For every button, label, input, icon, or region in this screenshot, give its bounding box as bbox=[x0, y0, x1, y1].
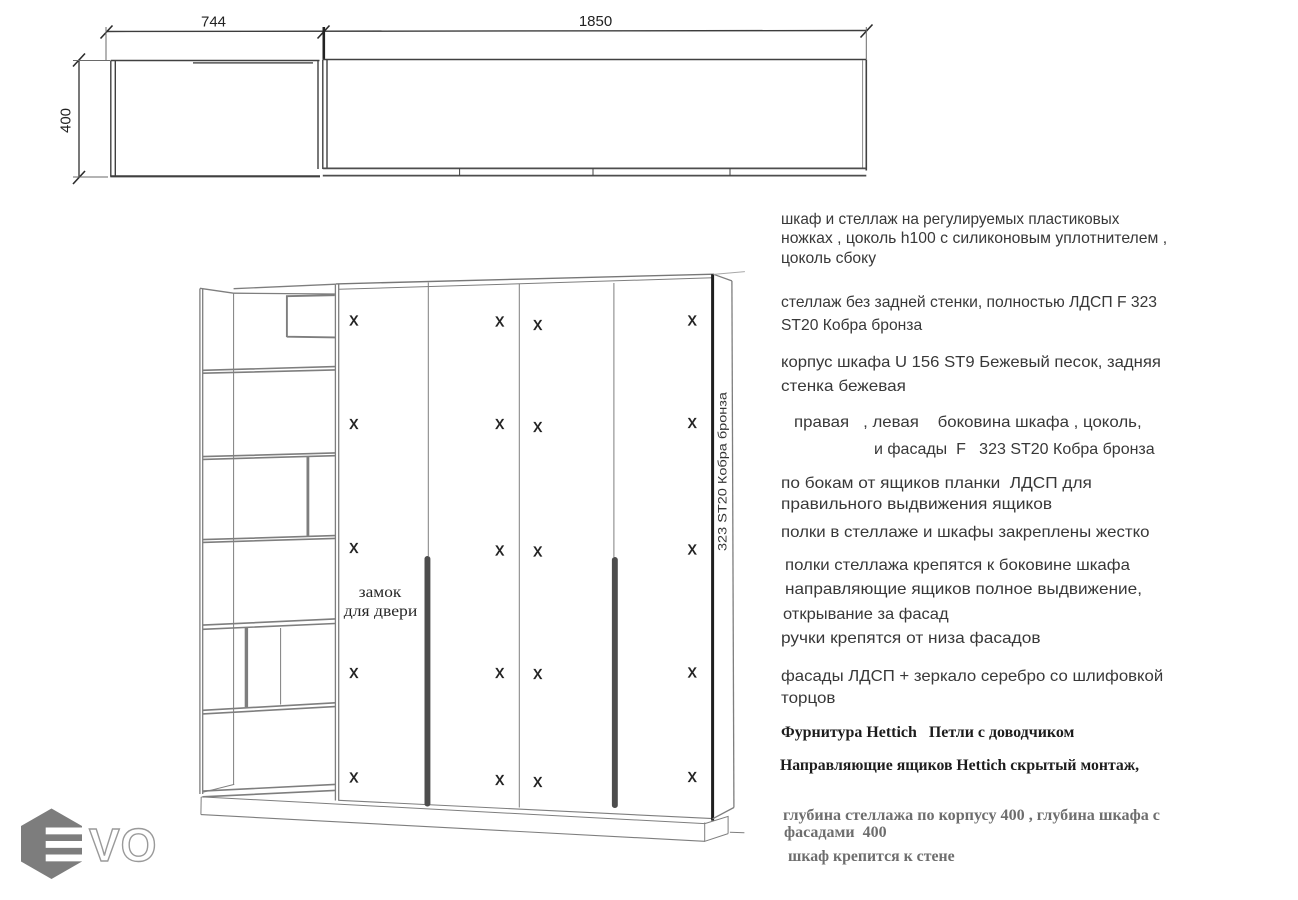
svg-text:x: x bbox=[495, 662, 504, 682]
svg-text:x: x bbox=[349, 766, 358, 786]
svg-text:замок: замок bbox=[359, 584, 402, 601]
svg-text:x: x bbox=[495, 413, 504, 433]
svg-text:x: x bbox=[688, 538, 697, 558]
svg-text:x: x bbox=[349, 413, 358, 433]
svg-text:x: x bbox=[495, 769, 504, 789]
svg-text:1850: 1850 bbox=[579, 13, 612, 30]
svg-text:x: x bbox=[349, 310, 358, 330]
svg-text:323 ST20 Кобра бронза: 323 ST20 Кобра бронза bbox=[716, 392, 730, 551]
svg-text:x: x bbox=[688, 662, 697, 682]
svg-text:x: x bbox=[533, 663, 542, 683]
svg-text:x: x bbox=[688, 309, 697, 329]
svg-text:x: x bbox=[688, 766, 697, 786]
svg-text:x: x bbox=[349, 662, 358, 682]
svg-text:x: x bbox=[533, 314, 542, 334]
svg-text:x: x bbox=[533, 771, 542, 791]
svg-text:для двери: для двери bbox=[344, 603, 418, 620]
svg-text:VO: VO bbox=[89, 819, 157, 871]
svg-text:x: x bbox=[688, 412, 697, 432]
svg-text:744: 744 bbox=[201, 14, 226, 31]
svg-text:x: x bbox=[533, 416, 542, 436]
svg-text:x: x bbox=[349, 537, 358, 557]
svg-text:x: x bbox=[495, 539, 504, 559]
svg-text:x: x bbox=[533, 540, 542, 560]
svg-text:x: x bbox=[495, 310, 504, 330]
svg-text:400: 400 bbox=[58, 108, 75, 133]
